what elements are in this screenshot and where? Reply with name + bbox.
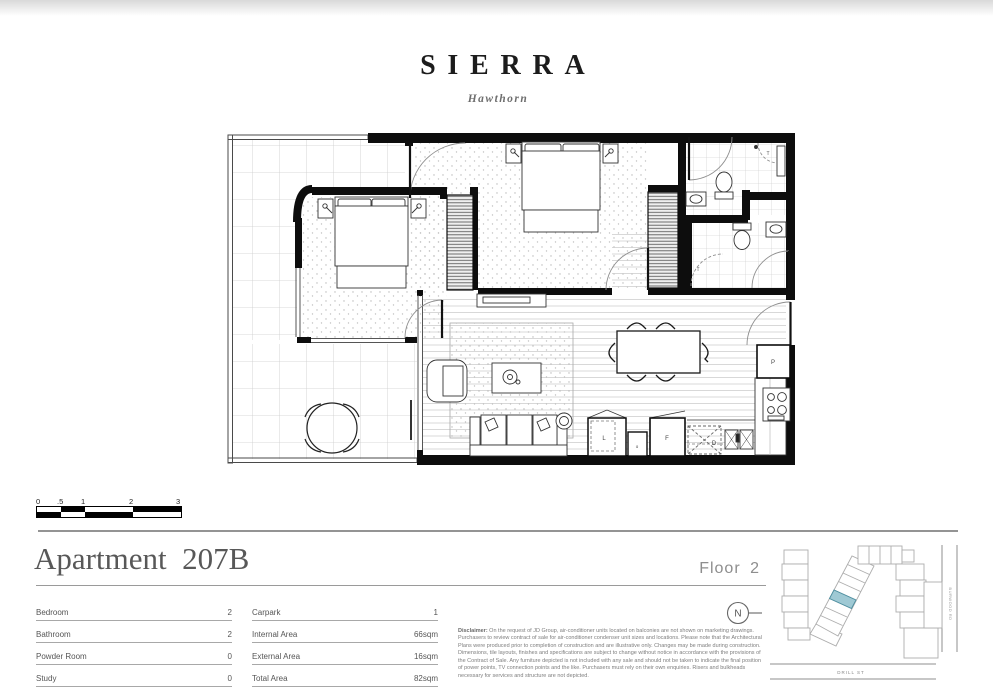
spec-value: 0 — [228, 652, 232, 661]
cooktop — [763, 388, 790, 421]
scale-bar: 0 .5 1 2 3 — [36, 497, 184, 518]
street-label-right: BURWOOD RD — [948, 587, 953, 620]
street-label-bottom: DRILL ST — [837, 670, 865, 675]
spec-value: 82sqm — [414, 674, 438, 683]
spec-label: Powder Room — [36, 652, 87, 661]
floor-label: Floor 2 — [620, 560, 760, 578]
spec-row-carpark: Carpark 1 — [252, 599, 438, 621]
scale-label: .5 — [57, 497, 63, 506]
building-map-svg: DRILL ST BURWOOD RD — [768, 540, 968, 690]
spec-row-total-area: Total Area 82sqm — [252, 665, 438, 687]
wardrobe-bed1 — [648, 192, 678, 288]
spec-label: Internal Area — [252, 630, 297, 639]
fridge-label: F — [665, 436, 669, 442]
scale-bar-graphic — [36, 506, 182, 518]
brand-subtitle: Hawthorn — [0, 93, 993, 105]
compass-letter: N — [734, 609, 741, 620]
north-compass-svg: N — [725, 600, 769, 626]
separator-rule — [38, 530, 958, 532]
dining-table — [617, 331, 700, 373]
spec-row-bedroom: Bedroom 2 — [36, 599, 232, 621]
spec-row-internal-area: Internal Area 66sqm — [252, 621, 438, 643]
spec-row-study: Study 0 — [36, 665, 232, 687]
spec-value: 16sqm — [414, 652, 438, 661]
spec-value: 2 — [228, 630, 232, 639]
spec-row-powder-room: Powder Room 0 — [36, 643, 232, 665]
disclaimer-text: Disclaimer: On the request of JD Group, … — [458, 628, 764, 680]
apartment-title: Apartment 207B — [34, 541, 249, 577]
spec-label: Bedroom — [36, 608, 68, 617]
shower-door-label-1: T — [766, 151, 769, 157]
spec-label: Bathroom — [36, 630, 71, 639]
shower-door-label-2: T — [696, 267, 699, 273]
spec-value: 0 — [228, 674, 232, 683]
brand-title: SIERRA — [0, 50, 993, 82]
spec-table-left: Bedroom 2 Bathroom 2 Powder Room 0 Study… — [36, 599, 232, 687]
hallway-floor — [612, 230, 648, 290]
sofa — [470, 415, 567, 456]
spec-value: 66sqm — [414, 630, 438, 639]
page-top-shadow — [0, 0, 993, 16]
spec-label: External Area — [252, 652, 300, 661]
floorplan-page: SIERRA Hawthorn — [0, 0, 993, 696]
disclaimer-body: On the request of JD Group, air-conditio… — [458, 628, 762, 679]
building-location-map: DRILL ST BURWOOD RD — [768, 540, 968, 695]
dining-set — [609, 323, 708, 381]
building-footprint — [782, 546, 942, 658]
spec-label: Total Area — [252, 674, 288, 683]
spec-value: 1 — [434, 608, 438, 617]
wardrobe-bed2 — [447, 195, 473, 290]
spec-table-right: Carpark 1 Internal Area 66sqm External A… — [252, 599, 438, 687]
scale-label: 1 — [81, 497, 85, 506]
disclaimer-lead: Disclaimer: — [458, 628, 488, 634]
spec-row-bathroom: Bathroom 2 — [36, 621, 232, 643]
spec-value: 2 — [228, 608, 232, 617]
scale-label: 2 — [129, 497, 133, 506]
pantry-label: P — [771, 360, 775, 366]
spec-label: Carpark — [252, 608, 280, 617]
floor-plan: T T — [225, 118, 800, 470]
scale-label: 3 — [176, 497, 180, 506]
fridge: F — [650, 411, 685, 456]
scale-label: 0 — [36, 497, 40, 506]
north-compass: N — [725, 600, 769, 631]
scale-labels: 0 .5 1 2 3 — [36, 497, 184, 506]
floor-plan-svg: T T — [225, 118, 800, 470]
spec-row-external-area: External Area 16sqm — [252, 643, 438, 665]
spec-label: Study — [36, 674, 56, 683]
header-rule — [36, 585, 766, 586]
